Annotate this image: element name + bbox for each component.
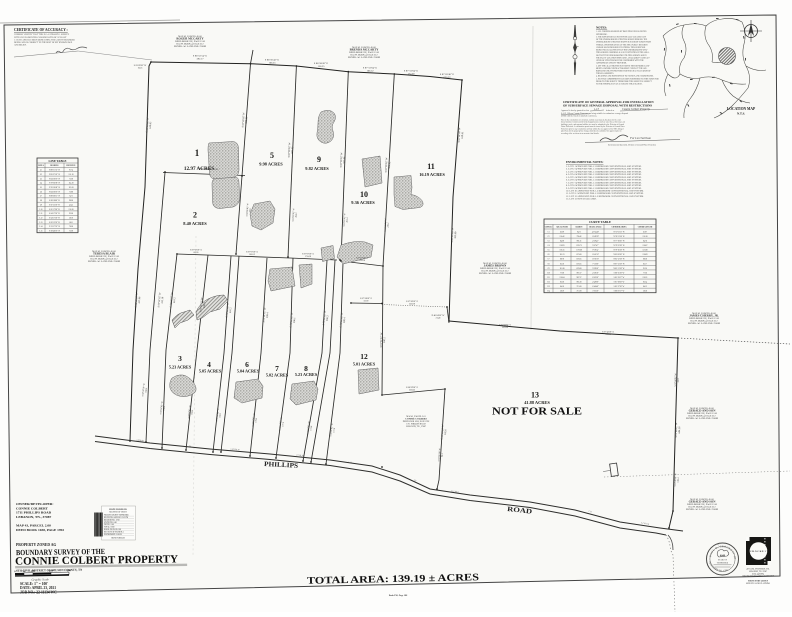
svg-text:9°07'47": 9°07'47" (592, 244, 599, 247)
svg-text:77.06: 77.06 (643, 272, 647, 274)
svg-text:9.82 ACRES: 9.82 ACRES (305, 166, 329, 171)
svg-text:TO THE FINDINGS OF AN ACCURATE: TO THE FINDINGS OF AN ACCURATE TITLE SEA… (596, 83, 643, 86)
svg-text:4040: 4040 (720, 554, 726, 557)
svg-text:4°28'18": 4°28'18" (592, 271, 599, 274)
svg-text:S 03°09'03" W: S 03°09'03" W (134, 64, 146, 67)
svg-text:3. LOT 3 APPROVED FOR A 3 BED: 3. LOT 3 APPROVED FOR A 3 BEDROOM CONVEN… (566, 170, 642, 173)
svg-text:UNDERGROUND UTILITIES SHOWN HA: UNDERGROUND UTILITIES SHOWN HAVE BEEN TA… (596, 41, 651, 44)
svg-text:4°59'42": 4°59'42" (592, 240, 599, 243)
svg-text:L9: L9 (40, 204, 42, 206)
svg-text:S 87°43'18" E: S 87°43'18" E (602, 331, 614, 334)
svg-text:S 87°26'18" E: S 87°26'18" E (406, 300, 418, 303)
svg-text:SURVEYS LAND PLANNING: SURVEYS LAND PLANNING (746, 582, 771, 585)
svg-text:74.71: 74.71 (69, 196, 73, 198)
svg-text:N 18°48'18" W: N 18°48'18" W (49, 230, 60, 233)
svg-text:284.2: 284.2 (296, 213, 298, 218)
svg-text:BEARING: BEARING (50, 164, 59, 167)
svg-text:84.08: 84.08 (560, 241, 564, 243)
svg-text:ROPRIATE UTILITY PROVIDER FOR: ROPRIATE UTILITY PROVIDER FOR THE EXACT … (596, 70, 651, 73)
svg-text:3°05'28": 3°05'28" (592, 290, 599, 293)
svg-text:L5: L5 (40, 187, 42, 189)
svg-text:L10: L10 (40, 209, 43, 211)
svg-text:S 87°07'18" E: S 87°07'18" E (190, 249, 202, 252)
svg-text:84.18: 84.18 (560, 286, 564, 288)
svg-text:L3: L3 (40, 178, 42, 180)
svg-text:4. LOT 4 APPROVED FOR A 3 BED: 4. LOT 4 APPROVED FOR A 3 BEDROOM CONVEN… (566, 173, 642, 176)
svg-text:VISIBLE APPURTENANCES AT THE S: VISIBLE APPURTENANCES AT THE SITE. PUBLI… (596, 43, 648, 46)
svg-text:MAKES NO GUARANTEE THAT THE UN: MAKES NO GUARANTEE THAT THE UNDERGROUND … (596, 49, 648, 52)
svg-text:106.1: 106.1 (69, 222, 73, 224)
svg-text:38.59: 38.59 (560, 291, 564, 293)
svg-text:AND BELIEF.: AND BELIEF. (14, 43, 27, 46)
svg-text:82.38: 82.38 (560, 281, 564, 283)
svg-text:110.23: 110.23 (560, 254, 565, 256)
svg-text:111.88: 111.88 (560, 268, 565, 270)
svg-text:CURVE #: CURVE # (545, 227, 553, 229)
svg-text:LEBANON, TN., 37087: LEBANON, TN., 37087 (406, 425, 426, 428)
svg-text:3: 3 (178, 354, 182, 363)
svg-text:2: 2 (193, 211, 197, 220)
svg-text:11°41'18": 11°41'18" (592, 253, 599, 256)
svg-text:L7: L7 (40, 196, 42, 198)
svg-text:399.4: 399.4 (266, 312, 270, 319)
svg-text:C7: C7 (547, 259, 549, 261)
svg-text:11°49'09": 11°49'09" (592, 235, 599, 238)
svg-text:136.42: 136.42 (560, 236, 565, 238)
svg-text:136.18: 136.18 (643, 236, 648, 238)
svg-text:N 87°13'19" W: N 87°13'19" W (613, 262, 624, 265)
svg-text:S 88°21'07" W: S 88°21'07" W (614, 290, 625, 293)
svg-text:N 46°04'50" W: N 46°04'50" W (432, 314, 445, 317)
svg-text:5.23 ACRES: 5.23 ACRES (169, 365, 192, 370)
svg-text:2. THE SURVEYOR HAS NOT PHYSIC: 2. THE SURVEYOR HAS NOT PHYSICALLY LOCAT… (596, 35, 647, 38)
svg-text:ZONED: AG LAND USE: FARM: ZONED: AG LAND USE: FARM (174, 45, 206, 48)
svg-text:1291.75: 1291.75 (576, 245, 582, 247)
svg-text:136.58: 136.58 (359, 260, 365, 262)
svg-text:684.18: 684.18 (678, 426, 681, 434)
svg-text:676.08: 676.08 (577, 268, 582, 270)
svg-text:592.08: 592.08 (343, 156, 346, 164)
svg-text:C4: C4 (547, 245, 549, 247)
svg-text:L15: L15 (40, 231, 43, 233)
svg-text:7°13'08": 7°13'08" (592, 262, 599, 265)
svg-text:43.42: 43.42 (69, 204, 73, 206)
svg-text:598.05: 598.05 (245, 116, 249, 124)
svg-text:125.88: 125.88 (643, 250, 648, 252)
svg-text:C11: C11 (547, 277, 550, 279)
svg-text:7. LOT 7 APPROVED FOR A 3 BED: 7. LOT 7 APPROVED FOR A 3 BEDROOM CONVEN… (566, 181, 642, 184)
svg-text:138.21: 138.21 (643, 277, 648, 279)
svg-text:2. LOT 2 APPROVED FOR A 3 BED: 2. LOT 2 APPROVED FOR A 3 BEDROOM CONVEN… (566, 168, 642, 171)
svg-text:MENTS. OWNER/CONTRACTOR MUST C: MENTS. OWNER/CONTRACTOR MUST CONTACT THE… (596, 67, 647, 70)
svg-text:112.08: 112.08 (69, 187, 74, 189)
svg-text:13. LOT 13 NOT EVALUATED.: 13. LOT 13 NOT EVALUATED. (566, 198, 597, 201)
svg-text:S 02°46'02" W: S 02°46'02" W (674, 372, 677, 386)
svg-text:5. LOT 5 APPROVED FOR A 3 BED: 5. LOT 5 APPROVED FOR A 3 BEDROOM CONVEN… (566, 176, 642, 179)
svg-text:182.60: 182.60 (454, 231, 457, 239)
svg-text:101.18: 101.18 (69, 174, 74, 176)
svg-text:ENVIRONMENTAL NOTES:: ENVIRONMENTAL NOTES: (566, 160, 603, 164)
svg-text:N 82°11'18" W: N 82°11'18" W (614, 267, 625, 270)
svg-text:78.08: 78.08 (69, 226, 73, 228)
svg-text:9.98 ACRES: 9.98 ACRES (259, 162, 283, 167)
svg-text:N 79°16'18" W: N 79°16'18" W (613, 249, 624, 252)
svg-text:C12: C12 (547, 281, 550, 283)
svg-text:C4: C4 (189, 446, 191, 448)
svg-text:THE EXACT LOCATION INDICATED.: THE EXACT LOCATION INDICATED. AVAILABILI… (596, 56, 650, 59)
svg-text:61.87: 61.87 (643, 231, 647, 233)
svg-text:DELTA ANGLE: DELTA ANGLE (589, 226, 602, 229)
svg-text:LINE #: LINE # (38, 165, 44, 167)
svg-text:180.2: 180.2 (383, 336, 386, 342)
svg-text:N 85°27'42" W: N 85°27'42" W (49, 173, 60, 176)
svg-text:619.05: 619.05 (149, 121, 153, 129)
svg-text:C5: C5 (547, 250, 549, 252)
svg-text:ZONED: AG LAND USE: FARM: ZONED: AG LAND USE: FARM (686, 417, 718, 420)
svg-text:41°04'40": 41°04'40" (592, 230, 599, 233)
svg-text:396.1: 396.1 (293, 317, 297, 324)
svg-text:defined as: defined as (606, 109, 614, 112)
svg-text:I HEREBY CERTIFY THAT THIS IS: I HEREBY CERTIFY THAT THIS IS A CATEGORY… (14, 33, 70, 36)
svg-text:85.17: 85.17 (643, 263, 647, 265)
svg-text:336.09: 336.09 (409, 304, 415, 306)
svg-text:16.25: 16.25 (138, 68, 143, 70)
svg-text:73.88: 73.88 (69, 191, 73, 193)
svg-text:C13: C13 (547, 286, 550, 288)
svg-text:987.37: 987.37 (577, 277, 582, 279)
svg-text:136.18: 136.18 (69, 209, 74, 211)
svg-text:ITIES SHOWN COMPRISE ALL SUCH: ITIES SHOWN COMPRISE ALL SUCH UTILITIES … (596, 51, 650, 54)
svg-text:5.02 ACRES: 5.02 ACRES (266, 373, 289, 378)
svg-text:670.08: 670.08 (577, 254, 582, 256)
svg-text:114.38: 114.38 (69, 183, 74, 185)
svg-text:4°48'08": 4°48'08" (592, 280, 599, 283)
svg-text:N 84°18'18" W: N 84°18'18" W (49, 190, 60, 193)
svg-text:10. LOT 10 APPROVED FOR A 3 BE: 10. LOT 10 APPROVED FOR A 3 BEDROOM CONV… (566, 190, 644, 193)
svg-text:C1: C1 (547, 231, 549, 233)
svg-text:5.05 ACRES: 5.05 ACRES (199, 369, 222, 374)
svg-text:JOB NO.: 22-11134 WC: JOB NO.: 22-11134 WC (20, 590, 57, 594)
svg-text:ZONED: AG LAND USE: FARM: ZONED: AG LAND USE: FARM (688, 322, 720, 325)
svg-text:1179.68: 1179.68 (576, 250, 582, 252)
svg-text:796.42: 796.42 (577, 236, 582, 238)
svg-text:278.2: 278.2 (388, 223, 390, 228)
svg-text:C3: C3 (547, 241, 549, 243)
svg-text:ZONED: AG LAND USE: FARM: ZONED: AG LAND USE: FARM (88, 260, 120, 263)
svg-text:5.01 ACRES: 5.01 ACRES (353, 362, 376, 367)
svg-text:L14: L14 (40, 226, 43, 228)
svg-text:RADIUS: RADIUS (576, 226, 583, 229)
svg-text:S 03°05'02" W: S 03°05'02" W (384, 217, 387, 231)
svg-text:12. LOT 12 APPROVED FOR A 3 BE: 12. LOT 12 APPROVED FOR A 3 BEDROOM CONV… (566, 195, 644, 198)
svg-text:L12: L12 (40, 217, 43, 219)
svg-text:174.08: 174.08 (305, 256, 311, 258)
svg-text:S 87°07'18" E: S 87°07'18" E (302, 253, 314, 256)
svg-text:9°28'58": 9°28'58" (592, 267, 599, 270)
svg-text:S 88°11'38" W: S 88°11'38" W (614, 271, 625, 274)
svg-text:5. NO TITLE COMMITMENT HAS BEE: 5. NO TITLE COMMITMENT HAS BEEN FURNISHE… (596, 77, 659, 80)
svg-text:S 84°17'58" W: S 84°17'58" W (49, 212, 60, 215)
svg-text:38.58: 38.58 (643, 291, 647, 293)
svg-text:417.06: 417.06 (138, 296, 142, 304)
svg-text:166.25: 166.25 (269, 62, 277, 65)
svg-text:339.30: 339.30 (502, 327, 508, 329)
svg-text:1. ALL CORNERS MARKED BY IRON: 1. ALL CORNERS MARKED BY IRON PINS UNLES… (596, 30, 647, 33)
svg-text:C14: C14 (547, 291, 550, 293)
svg-text:N 78°31'34" W: N 78°31'34" W (613, 235, 624, 238)
svg-text:66.00: 66.00 (194, 252, 199, 254)
svg-text:12: 12 (360, 352, 368, 361)
svg-text:630.22: 630.22 (444, 76, 452, 79)
svg-text:156.25: 156.25 (318, 65, 326, 68)
svg-text:S 85°06'04" E: S 85°06'04" E (499, 324, 511, 327)
svg-text:S 88°18'48" W: S 88°18'48" W (49, 199, 60, 202)
svg-text:S 82°12'18" W: S 82°12'18" W (49, 221, 60, 224)
svg-text:L6: L6 (40, 191, 42, 193)
svg-text:N 88°11'52" W: N 88°11'52" W (49, 169, 60, 172)
svg-text:(SSD) with the listed or attac: (SSD) with the listed or attached restri… (561, 115, 598, 118)
svg-text:Book P30, Page 188: Book P30, Page 188 (389, 594, 408, 597)
svg-text:9. LOT 9 APPROVED FOR A 3 BED: 9. LOT 9 APPROVED FOR A 3 BEDROOM CONVEN… (566, 187, 642, 190)
svg-text:77.08: 77.08 (560, 272, 564, 274)
svg-text:ATION OF UTILITIES MUST BE CON: ATION OF UTILITIES MUST BE CONFIRMED WIT… (596, 59, 644, 62)
svg-text:REGISTER OF DEEDS: REGISTER OF DEEDS (109, 512, 127, 514)
svg-text:21.48: 21.48 (436, 318, 441, 320)
svg-text:N 82°08'36" W: N 82°08'36" W (613, 253, 624, 256)
svg-text:NOT FOR SALE: NOT FOR SALE (492, 407, 582, 418)
svg-text:L2: L2 (40, 174, 42, 176)
svg-text:138.69: 138.69 (643, 254, 648, 256)
svg-text:392.17: 392.17 (197, 58, 205, 61)
svg-text:166.52: 166.52 (249, 254, 255, 256)
svg-text:73.08: 73.08 (69, 231, 73, 233)
svg-text:11: 11 (427, 162, 435, 171)
svg-text:92.08: 92.08 (69, 213, 73, 215)
svg-text:6. LOT 6 APPROVED FOR A 3 BED: 6. LOT 6 APPROVED FOR A 3 BEDROOM CONVEN… (566, 179, 642, 182)
svg-text:88.78: 88.78 (560, 259, 564, 261)
svg-text:C8: C8 (547, 263, 549, 265)
svg-text:84.13: 84.13 (643, 286, 647, 288)
svg-text:38.18: 38.18 (69, 217, 73, 219)
svg-text:82.34: 82.34 (643, 281, 647, 283)
svg-text:N.T.S.: N.T.S. (737, 112, 746, 116)
svg-text:388.4: 388.4 (343, 317, 347, 324)
svg-text:98.08: 98.08 (69, 200, 73, 202)
svg-text:6-1-21, Wilson County, Tennes: 6-1-21, Wilson County, Tennessee, as bei… (561, 112, 629, 115)
svg-text:N 88°28'12" W: N 88°28'12" W (49, 195, 60, 198)
svg-text:N 84°18'18" W: N 84°18'18" W (49, 177, 60, 180)
svg-text:1: 1 (195, 148, 200, 158)
svg-text:L4: L4 (40, 183, 42, 185)
svg-text:DEEDS AND IS CORRECT TO THE BE: DEEDS AND IS CORRECT TO THE BEST OF MY K… (14, 41, 73, 44)
svg-text:63.09: 63.09 (560, 231, 564, 233)
svg-text:1. LOT 1 APPROVED FOR A 3 BED: 1. LOT 1 APPROVED FOR A 3 BEDROOM CONVEN… (566, 165, 642, 168)
svg-text:676.05: 676.05 (577, 263, 582, 265)
svg-text:ARC LENGTH: ARC LENGTH (556, 226, 568, 229)
svg-text:S 87°24'18" E: S 87°24'18" E (360, 297, 372, 300)
svg-text:41.88 ACRES: 41.88 ACRES (524, 400, 550, 405)
svg-text:91.30: 91.30 (643, 268, 647, 270)
svg-text:102.6: 102.6 (444, 429, 447, 436)
svg-text:AND/OR MAPS PREPARED BY OTHERS: AND/OR MAPS PREPARED BY OTHERS. THIS SUR… (596, 46, 646, 49)
svg-text:Environmental Specialist, Divi: Environmental Specialist, Division of Gr… (608, 144, 656, 147)
svg-text:N 73°03'31" W: N 73°03'31" W (613, 230, 624, 233)
svg-text:ZONED: AG LAND USE: FARM: ZONED: AG LAND USE: FARM (479, 272, 511, 275)
svg-text:5: 5 (270, 151, 274, 160)
svg-text:6°44'48": 6°44'48" (592, 285, 599, 288)
svg-text:CHORD BEARING: CHORD BEARING (611, 226, 627, 229)
svg-text:PROPERTY ZONED AG: PROPERTY ZONED AG (16, 543, 56, 547)
svg-text:CROCKETTSURV@BELLSOUTH.NET: CROCKETTSURV@BELLSOUTH.NET (742, 576, 775, 578)
svg-text:THESE EASEMENTS.: THESE EASEMENTS. (596, 72, 614, 75)
svg-text:47.43: 47.43 (214, 169, 219, 171)
svg-text:94.71: 94.71 (577, 231, 581, 233)
svg-text:236.62: 236.62 (409, 390, 415, 392)
svg-text:ZONED: AG LAND USE: FARM: ZONED: AG LAND USE: FARM (686, 508, 718, 511)
svg-text:9.36 ACRES: 9.36 ACRES (351, 200, 375, 205)
svg-text:12.97 ACRES: 12.97 ACRES (184, 166, 214, 172)
svg-text:88.38: 88.38 (643, 259, 647, 261)
svg-text:HOPE FORELER: HOPE FORELER (111, 538, 126, 540)
svg-text:OF SUBSURFACE SEWAGE DISPOSAL: OF SUBSURFACE SEWAGE DISPOSAL WITH RESTR… (563, 104, 652, 108)
svg-text:OR THAT THE UNDERGROUND UTILIT: OR THAT THE UNDERGROUND UTILITIES SHOWN … (596, 54, 647, 57)
svg-text:L12: L12 (348, 462, 351, 464)
svg-text:LEBANON, TN., 37087: LEBANON, TN., 37087 (16, 515, 51, 519)
svg-text:C2: C2 (547, 236, 549, 238)
svg-text:588.02: 588.02 (388, 161, 391, 169)
svg-text:Approval is hereby granted for: Approval is hereby granted for lots (561, 109, 589, 112)
svg-text:S 81°22'18" W: S 81°22'18" W (49, 203, 60, 206)
svg-text:L13: L13 (40, 222, 43, 224)
svg-text:410.2: 410.2 (173, 297, 177, 304)
svg-text:S 81°18'58" W: S 81°18'58" W (614, 280, 625, 283)
svg-text:STATE OF: STATE OF (718, 559, 728, 562)
svg-text:C10: C10 (547, 272, 550, 274)
svg-text:13: 13 (531, 391, 539, 400)
svg-text:401.2: 401.2 (229, 307, 233, 314)
svg-text:10: 10 (360, 190, 368, 199)
svg-text:9: 9 (317, 155, 321, 164)
svg-text:N 79°22'38" W: N 79°22'38" W (613, 244, 624, 247)
svg-text:106.15: 106.15 (560, 250, 565, 252)
svg-text:S 86°59'58" E: S 86°59'58" E (406, 386, 418, 389)
svg-text:S 87°07'18" E: S 87°07'18" E (356, 257, 368, 260)
svg-text:N 77°18'30" W: N 77°18'30" W (613, 240, 624, 243)
svg-text:73.08: 73.08 (69, 178, 73, 180)
svg-text:1-13: 1-13 (594, 108, 599, 111)
svg-text:N 76°18'48" W: N 76°18'48" W (49, 186, 60, 189)
svg-text:DISTANCE: DISTANCE (67, 164, 77, 167)
svg-text:98.2: 98.2 (442, 453, 444, 457)
svg-text:138.67: 138.67 (643, 245, 648, 247)
svg-text:DEED BOOK 1658, PAGE 1992: DEED BOOK 1658, PAGE 1992 (16, 528, 64, 532)
svg-text:CHORD LENGTH: CHORD LENGTH (638, 227, 653, 229)
svg-text:NOTES:: NOTES: (596, 26, 607, 30)
svg-text:288.1: 288.1 (250, 208, 252, 213)
svg-text:85.18: 85.18 (560, 263, 564, 265)
svg-text:LOCATION MAP: LOCATION MAP (727, 107, 756, 111)
svg-text:619.61: 619.61 (461, 131, 464, 139)
svg-text:166.52: 166.52 (367, 70, 375, 73)
svg-text:8°00'38": 8°00'38" (592, 276, 599, 279)
svg-text:APPROPRIATE UTILITY PROVIDER.: APPROPRIATE UTILITY PROVIDER. (596, 62, 627, 65)
svg-text:91.74: 91.74 (69, 170, 73, 172)
svg-text:L1: L1 (40, 170, 42, 172)
svg-text:N 79°06'08" W: N 79°06'08" W (49, 182, 60, 185)
svg-text:756.38: 756.38 (605, 334, 611, 336)
svg-text:3. OFF SITE ALL UTILITIES MAY: 3. OFF SITE ALL UTILITIES MAY SERVE THIS… (596, 64, 650, 67)
svg-text:Graphic Scale: Graphic Scale (31, 577, 49, 581)
svg-text:CERTIFICATE OF ACCURACY :: CERTIFICATE OF ACCURACY : (14, 28, 68, 32)
svg-text:676.05: 676.05 (577, 259, 582, 261)
svg-text:S 87°07'18" E: S 87°07'18" E (246, 251, 258, 254)
svg-text:For Levi Sullivan: For Levi Sullivan (629, 136, 651, 140)
svg-text:138.04: 138.04 (560, 277, 565, 279)
svg-text:L8: L8 (40, 200, 42, 202)
svg-text:C9: C9 (547, 268, 549, 270)
svg-text:9°18'14": 9°18'14" (592, 249, 599, 252)
svg-text:8.40 ACRES: 8.40 ACRES (183, 221, 207, 226)
svg-text:715.08: 715.08 (577, 291, 582, 293)
svg-text:CURVE TABLE: CURVE TABLE (589, 220, 611, 224)
svg-text:985.18: 985.18 (577, 281, 582, 283)
svg-text:11. LOT 11 APPROVED FOR A 3 BE: 11. LOT 11 APPROVED FOR A 3 BEDROOM CONV… (566, 192, 644, 195)
svg-text:S 85°15'07" W: S 85°15'07" W (614, 276, 625, 279)
svg-text:S 81°17'08" W: S 81°17'08" W (49, 208, 60, 211)
svg-text:S 83°17'38" W: S 83°17'38" W (614, 285, 625, 288)
svg-text:84.76: 84.76 (643, 241, 647, 243)
svg-text:S 84°17'58" W: S 84°17'58" W (49, 216, 60, 219)
svg-text:5.23 ACRES: 5.23 ACRES (295, 372, 318, 377)
svg-text:N 83°12'18" W: N 83°12'18" W (613, 258, 624, 261)
svg-text:174.60: 174.60 (408, 73, 416, 76)
svg-text:11°03'18": 11°03'18" (592, 258, 599, 261)
svg-text:16.19 ACRES: 16.19 ACRES (419, 172, 445, 177)
svg-text:987.37: 987.37 (577, 272, 582, 274)
svg-text:8. LOT 8 APPROVED FOR A 3 BED: 8. LOT 8 APPROVED FOR A 3 BEDROOM CONVEN… (566, 184, 642, 187)
svg-text:715.08: 715.08 (577, 286, 582, 288)
svg-text:recording of the revisions to: recording of the revisions to an accurat… (561, 132, 600, 135)
svg-text:C6: C6 (547, 254, 549, 256)
svg-text:TENNESSEE: TENNESSEE (717, 563, 729, 565)
svg-text:601.52: 601.52 (291, 146, 294, 154)
svg-text:N 13°17'18" W: N 13°17'18" W (49, 225, 60, 228)
svg-text:5.04 ACRES: 5.04 ACRES (237, 369, 260, 374)
svg-text:ZONED: AG LAND USE: FARM: ZONED: AG LAND USE: FARM (348, 56, 380, 59)
svg-text:50.00: 50.00 (364, 301, 369, 303)
svg-text:985.11: 985.11 (577, 241, 582, 243)
svg-text:LINE TABLE: LINE TABLE (49, 159, 67, 163)
svg-text:138.93: 138.93 (560, 245, 565, 247)
svg-text:342.1: 342.1 (678, 378, 680, 383)
svg-text:L11: L11 (40, 213, 43, 215)
svg-text:4. BEARINGS ARE REFERENCED TO: 4. BEARINGS ARE REFERENCED TO STATE PLAN… (596, 75, 654, 78)
